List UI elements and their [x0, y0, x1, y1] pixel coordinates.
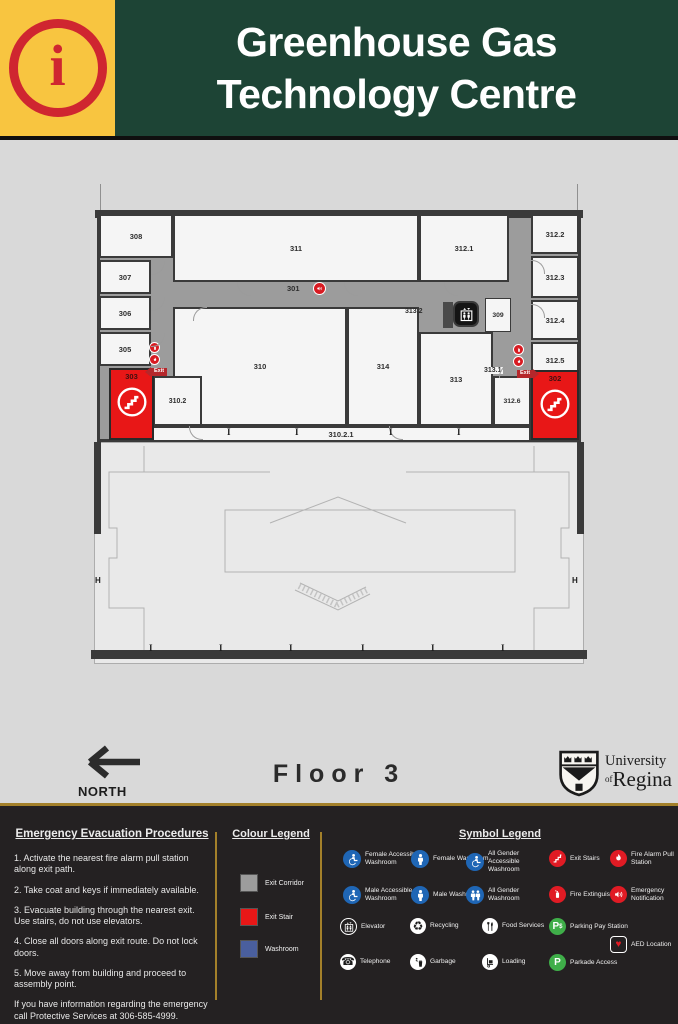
room-312-6: 312.6 — [493, 376, 531, 426]
fire-extinguisher-icon — [549, 886, 566, 903]
info-icon-glyph: i — [49, 37, 65, 95]
header: i Greenhouse Gas Technology Centre — [0, 0, 678, 140]
room-313-2-label: 313.2 — [405, 308, 423, 315]
info-badge: i — [0, 0, 115, 136]
elevator-shaft-wall — [443, 302, 453, 328]
recycling-icon: ♻ — [410, 918, 426, 934]
room-306: 306 — [99, 296, 151, 330]
column-marker: I — [295, 428, 299, 437]
exit-arrow-east: Exit — [517, 369, 539, 379]
legend-exit-corridor: Exit Corridor — [240, 874, 304, 892]
grid-line — [577, 184, 578, 212]
stairs-icon — [116, 386, 148, 418]
fire-alarm-pull-station-icon — [513, 356, 524, 367]
building-title-line1: Greenhouse Gas — [236, 16, 557, 68]
washroom-swatch — [240, 940, 258, 958]
legend-item: Garbage — [410, 954, 456, 970]
map-area: 308 307 306 305 311 312.1 312.2 312.3 31… — [0, 140, 678, 803]
logo-of: of — [605, 774, 613, 784]
university-logo: University ofRegina — [558, 750, 672, 797]
divider — [215, 832, 217, 1000]
legend-item: Exit Stairs — [549, 850, 600, 867]
legend-item: ☎ Telephone — [340, 954, 390, 970]
loading-icon — [482, 954, 498, 970]
floor-plan: 308 307 306 305 311 312.1 312.2 312.3 31… — [89, 198, 589, 668]
aed-location-icon: ♥ — [610, 936, 627, 953]
all-gender-washroom-icon — [466, 886, 484, 904]
legend-item: Loading — [482, 954, 525, 970]
room-312-1: 312.1 — [419, 214, 509, 282]
building-title-line2: Technology Centre — [217, 68, 577, 120]
procedure-step: 1. Activate the nearest fire alarm pull … — [14, 853, 210, 876]
all-gender-accessible-washroom-icon — [466, 853, 484, 871]
divider — [320, 832, 322, 1000]
fire-alarm-pull-station-icon — [610, 850, 627, 867]
emergency-notification-icon — [610, 886, 627, 903]
male-washroom-icon — [411, 886, 429, 904]
elevator-icon — [453, 301, 479, 327]
garbage-icon — [410, 954, 426, 970]
room-310-2: 310.2 — [153, 376, 202, 426]
room-313: 313 — [419, 332, 493, 426]
symbol-legend-title: Symbol Legend — [330, 828, 670, 840]
column-marker: I — [289, 644, 293, 653]
room-308: 308 — [99, 214, 173, 258]
legend-item: ♻ Recycling — [410, 918, 459, 934]
exit-stair-302: 302 — [531, 370, 579, 440]
parking-pay-station-icon: P$ — [549, 918, 566, 935]
footer: Emergency Evacuation Procedures 1. Activ… — [0, 803, 678, 1024]
legend-item: P Parkade Access — [549, 954, 617, 971]
room-311: 311 — [173, 214, 419, 282]
column-marker: I — [389, 428, 393, 437]
legend-item: All Gender Accessible Washroom — [466, 850, 546, 873]
procedure-step: 2. Take coat and keys if immediately ava… — [14, 885, 210, 896]
procedure-step: 5. Move away from building and proceed t… — [14, 968, 210, 991]
info-icon: i — [9, 19, 107, 117]
column-marker: I — [149, 644, 153, 653]
legend-item: Fire Extinguisher — [549, 886, 619, 903]
procedure-note: If you have information regarding the em… — [14, 999, 210, 1022]
column-marker: I — [457, 428, 461, 437]
procedures-title: Emergency Evacuation Procedures — [14, 828, 210, 840]
fire-extinguisher-icon — [513, 344, 524, 355]
room-307: 307 — [99, 260, 151, 294]
procedure-step: 3. Evacuate building through the nearest… — [14, 905, 210, 928]
telephone-icon: ☎ — [340, 954, 356, 970]
room-309: 309 — [485, 298, 511, 332]
colour-legend: Colour Legend Exit Corridor Exit Stair W… — [228, 828, 314, 840]
exit-stair-swatch — [240, 908, 258, 926]
legend-item: All Gender Washroom — [466, 886, 546, 904]
corridor-301-label: 301 — [287, 284, 300, 293]
evacuation-map-sign: i Greenhouse Gas Technology Centre 308 3… — [0, 0, 678, 1024]
male-accessible-washroom-icon — [343, 886, 361, 904]
room-305: 305 — [99, 332, 151, 366]
exit-stairs-icon — [549, 850, 566, 867]
stairs-icon — [539, 388, 571, 420]
column-marker: I — [431, 644, 435, 653]
legend-washroom: Washroom — [240, 940, 299, 958]
female-washroom-icon — [411, 850, 429, 868]
building-title: Greenhouse Gas Technology Centre — [115, 0, 678, 136]
elevator-icon — [340, 918, 357, 935]
colour-legend-title: Colour Legend — [228, 828, 314, 840]
legend-item: Elevator — [340, 918, 385, 935]
fire-alarm-pull-station-icon — [149, 354, 160, 365]
legend-item: P$ Parking Pay Station — [549, 918, 628, 935]
legend-item: Fire Alarm Pull Station — [610, 850, 678, 867]
female-accessible-washroom-icon — [343, 850, 361, 868]
grid-label-left: H — [95, 576, 101, 585]
corridor-310-2-1: 310.2.1 — [151, 426, 531, 442]
grid-line — [100, 184, 101, 212]
parkade-access-icon: P — [549, 954, 566, 971]
room-312-2: 312.2 — [531, 214, 579, 254]
column-marker: I — [361, 644, 365, 653]
exit-corridor-swatch — [240, 874, 258, 892]
atrium-detail — [94, 442, 584, 660]
column-marker: I — [219, 644, 223, 653]
university-crest-icon — [558, 750, 600, 797]
exit-stair-303: 303 — [109, 368, 154, 440]
legend-item: ♥ AED Location — [610, 936, 671, 953]
legend-exit-stair: Exit Stair — [240, 908, 293, 926]
grid-label-right: H — [572, 576, 578, 585]
legend-item: Emergency Notification — [610, 886, 678, 903]
room-314: 314 — [347, 307, 419, 426]
exit-arrow-west: Exit — [145, 367, 167, 377]
evacuation-procedures: Emergency Evacuation Procedures 1. Activ… — [14, 828, 210, 1024]
procedure-step: 4. Close all doors along exit route. Do … — [14, 936, 210, 959]
logo-regina: Regina — [613, 767, 672, 791]
column-marker: I — [227, 428, 231, 437]
food-services-icon — [482, 918, 498, 934]
legend-item: Food Services — [482, 918, 544, 934]
column-marker: I — [501, 644, 505, 653]
emergency-notification-icon — [313, 282, 326, 295]
